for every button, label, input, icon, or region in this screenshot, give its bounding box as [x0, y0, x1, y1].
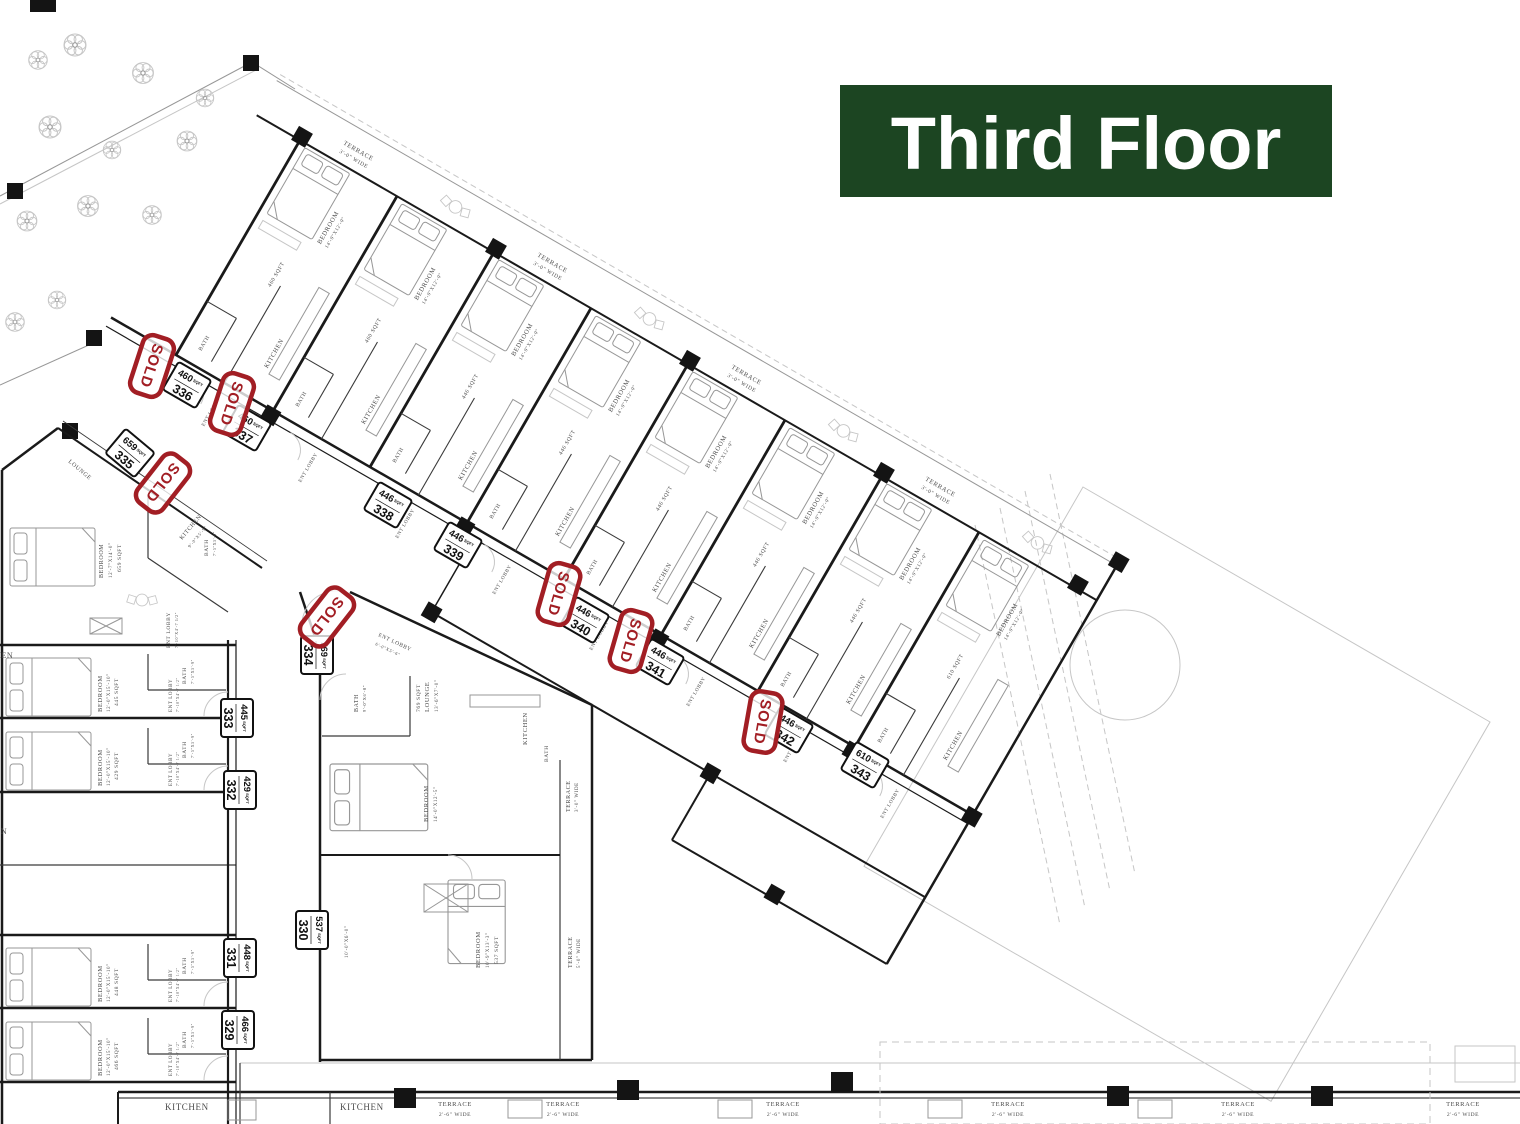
- terrace-label: TERRACE: [546, 1101, 580, 1108]
- ent-lobby-dims: 7'-10"X4'-7 1/2": [176, 967, 180, 1002]
- terrace-caption: TERRACE 2'-6" WIDE: [1221, 1101, 1255, 1118]
- bath-dims: 9'-0"X6'-0": [362, 685, 367, 712]
- bath-dims: 7'-5"X5'-9": [190, 1023, 195, 1048]
- terrace-label: TERRACE: [438, 1101, 472, 1108]
- bath-dims: 7'-5"X5'-9": [190, 733, 195, 758]
- bath-label: BATH: [182, 667, 188, 684]
- kitchen-label: KITCHEN: [165, 1102, 209, 1112]
- terrace-width: 2'-6" WIDE: [439, 1112, 471, 1118]
- terrace-caption: TERRACE 2'-6" WIDE: [991, 1101, 1025, 1118]
- bath-label: BATH: [354, 694, 360, 712]
- bedroom-label: BEDROOM: [97, 1039, 104, 1076]
- terrace-label: TERRACE: [566, 780, 572, 812]
- bottom-strip: TERRACE 2'-6" WIDE TERRACE 2'-6" WIDE TE…: [118, 1042, 1520, 1124]
- unit-area-label: 445SQFT: [114, 678, 120, 706]
- bedroom-dims: 12'-0"X15'-10": [107, 747, 112, 786]
- unit-number: 333: [221, 708, 235, 729]
- left-apartment-module: BEDROOM 12'-0"X15'-10" 466SQFT BATH 7'-5…: [6, 1018, 228, 1080]
- tree-icon: [29, 51, 48, 70]
- bath-label: BATH: [780, 671, 794, 689]
- terrace-caption: TERRACE 2'-6" WIDE: [546, 1101, 580, 1118]
- terrace-width: 2'-6" WIDE: [1222, 1112, 1254, 1118]
- bedroom-label: BEDROOM: [97, 965, 104, 1002]
- terrace-width: 2'-6" WIDE: [1447, 1112, 1479, 1118]
- tree-icon: [78, 196, 99, 217]
- bath-dims: 7'-5"X5'-9": [212, 531, 217, 556]
- unit-area-label: 446SQFT: [461, 373, 480, 400]
- bath-dims: 7'-5"X5'-9": [190, 659, 195, 684]
- bedroom-dims: 14'-0"X12'-5": [434, 786, 439, 822]
- terrace-label: TERRACE: [1446, 1101, 1480, 1108]
- terrace-width: 5'-0" WIDE: [577, 938, 582, 968]
- ent-lobby-label: ENT LOBBY: [169, 679, 174, 712]
- tree-icon: [48, 291, 66, 309]
- unit-number: 330: [296, 920, 310, 941]
- lounge-dims: 13'-6"X7'-0": [435, 679, 440, 712]
- bedroom-label: BEDROOM: [475, 931, 482, 968]
- bath-label: BATH: [204, 539, 210, 556]
- bedroom-label: BEDROOM: [423, 785, 430, 822]
- kitchen-label: KITCHEN: [0, 651, 13, 660]
- terrace-caption: TERRACE 2'-6" WIDE: [766, 1101, 800, 1118]
- unit-number: 331: [224, 948, 238, 969]
- unit-plate[interactable]: 659SQFT 335: [105, 429, 155, 478]
- unit-area-label: 460SQFT: [364, 317, 383, 344]
- ent-lobby-dims: 7'-10"X4'-7 1/2": [176, 1041, 180, 1076]
- lounge-label: LOUNGE: [424, 682, 431, 712]
- tree-icon: [64, 34, 86, 56]
- unit-plate[interactable]: 445SQFT 333: [221, 699, 253, 737]
- unit-area-label: 429SQFT: [114, 752, 120, 780]
- kitchen-label: KITCHEN: [340, 1102, 384, 1112]
- tree-icon: [177, 131, 197, 151]
- terrace-label: TERRACE: [991, 1101, 1025, 1108]
- ent-lobby-label: ENT LOBBY: [169, 969, 174, 1002]
- trees: [6, 34, 214, 331]
- entry-dims: 10'-0"X6'-0": [345, 925, 350, 958]
- unit-area-label: 460SQFT: [267, 261, 286, 288]
- ent-lobby-label: ENT LOBBY: [686, 676, 707, 707]
- unit-area-label: 448SQFT: [114, 968, 120, 996]
- bedroom-label: BEDROOM: [97, 675, 104, 712]
- unit-area-label: 537SQFT: [494, 936, 500, 964]
- wing-apartment-module: BEDROOM 14'-0"X12'-0" 460SQFT KITCHEN BA…: [249, 196, 485, 503]
- terrace-width: 3'-0" WIDE: [575, 782, 580, 812]
- bath-label: BATH: [182, 1031, 188, 1048]
- title-banner: Third Floor: [840, 85, 1332, 197]
- bath-label: BATH: [182, 741, 188, 758]
- tree-icon: [103, 141, 121, 159]
- unit-area-label: 610SQFT: [946, 653, 965, 680]
- bedroom-dims: 12'-0"X15'-10": [107, 673, 112, 712]
- bath-label: BATH: [877, 727, 891, 745]
- patio-table-icon: [1020, 529, 1054, 556]
- sold-stamp: SOLD: [296, 584, 358, 651]
- bedroom-dims: 12'-0"X15'-10": [107, 1037, 112, 1076]
- kitchen-label: KITCHEN: [0, 827, 7, 836]
- unit-plate[interactable]: 448SQFT 331: [224, 939, 256, 977]
- floor-plan-page: BEDROOM 14'-0"X12'-0" SQFT KITCHEN BATH …: [0, 0, 1520, 1124]
- bedroom-dims: 12'-0"X15'-10": [107, 963, 112, 1002]
- ent-lobby-dims: 7'-10"X4'-7 1/2": [176, 677, 180, 712]
- ent-lobby-label: ENT LOBBY: [169, 1043, 174, 1076]
- unit-area-label: 769SQFT: [416, 684, 422, 712]
- page-title: Third Floor: [891, 102, 1282, 185]
- terrace-width: 2'-6" WIDE: [992, 1112, 1024, 1118]
- unit-area-label: 466SQFT: [114, 1042, 120, 1070]
- ent-lobby-dims: 7'-10"X4'-7 1/2": [176, 751, 180, 786]
- tree-icon: [196, 89, 214, 107]
- unit-area-label: 659SQFT: [117, 544, 123, 572]
- bedroom-label: BEDROOM: [99, 544, 105, 578]
- patio-table-icon: [438, 193, 472, 220]
- bath-label: BATH: [489, 503, 503, 521]
- unit-number: 332: [224, 780, 238, 801]
- unit-plate[interactable]: 429SQFT 332: [224, 771, 256, 809]
- terrace-caption: TERRACE 2'-6" WIDE: [438, 1101, 472, 1118]
- ent-lobby-label: ENT LOBBY: [166, 612, 172, 648]
- unit-number: 334: [301, 645, 315, 666]
- tree-icon: [39, 116, 61, 138]
- pool-circle: [1070, 610, 1180, 720]
- ent-lobby-label: ENT LOBBY: [880, 788, 901, 819]
- left-apartment-module: BEDROOM 12'-0"X15'-10" 448SQFT BATH 7'-5…: [6, 944, 228, 1006]
- terrace-label: TERRACE: [568, 936, 574, 968]
- unit-area-label: 446SQFT: [849, 597, 868, 624]
- unit-plate[interactable]: 466SQFT 329: [222, 1011, 254, 1049]
- bath-label: BATH: [182, 957, 188, 974]
- unit-plate[interactable]: 537SQFT 330: [296, 911, 328, 949]
- bedroom-dims: 12'-7"X14'-0": [109, 542, 114, 578]
- bedroom-dims: 10'-9"X13'-3": [486, 932, 491, 968]
- terrace-label: TERRACE: [766, 1101, 800, 1108]
- ent-lobby-label: ENT LOBBY: [169, 753, 174, 786]
- terrace-width: 2'-6" WIDE: [767, 1112, 799, 1118]
- bath-label: BATH: [392, 447, 406, 465]
- tree-icon: [17, 211, 37, 231]
- terrace-label: TERRACE: [1221, 1101, 1255, 1108]
- bath-label: BATH: [295, 391, 309, 409]
- tree-icon: [6, 313, 25, 332]
- bath-dims: 7'-5"X5'-9": [190, 949, 195, 974]
- bath-label: BATH: [683, 615, 697, 633]
- terrace-width: 2'-6" WIDE: [547, 1112, 579, 1118]
- bedroom-label: BEDROOM: [97, 749, 104, 786]
- unit-334-330-block: 769SQFT LOUNGE 13'-6"X7'-0" BATH 9'-0"X6…: [300, 591, 592, 1062]
- unit-area-label: 446SQFT: [655, 485, 674, 512]
- tree-icon: [133, 63, 154, 84]
- ent-lobby-label: ENT LOBBY: [492, 564, 513, 595]
- lounge-label: LOUNGE: [67, 459, 93, 482]
- ent-lobby-label: ENT LOBBY: [298, 452, 319, 483]
- unit-area-label: 446SQFT: [752, 541, 771, 568]
- patio-table-icon: [632, 305, 666, 332]
- bath-label: BATH: [544, 745, 550, 762]
- bath-label: BATH: [586, 559, 600, 577]
- patio-table-icon: [826, 417, 860, 444]
- left-apartment-module: BEDROOM 12'-0"X15'-10" 445SQFT BATH 7'-5…: [6, 654, 228, 716]
- unit-number: 329: [222, 1020, 236, 1041]
- terrace-caption: TERRACE 2'-6" WIDE: [1446, 1101, 1480, 1118]
- unit-area-label: 446SQFT: [558, 429, 577, 456]
- kitchen-label: KITCHEN: [522, 712, 529, 745]
- bath-label: BATH: [198, 335, 212, 353]
- tree-icon: [143, 206, 162, 225]
- ent-lobby-dims: 7'-10"X4'-7 1/2": [174, 612, 179, 648]
- wing-apartment-module: BEDROOM 14'-0"X12'-0" 446SQFT KITCHEN BA…: [637, 420, 873, 727]
- sold-stamp: SOLD: [742, 690, 784, 755]
- left-apartment-module: BEDROOM 12'-0"X15'-10" 429SQFT BATH 7'-5…: [6, 728, 228, 790]
